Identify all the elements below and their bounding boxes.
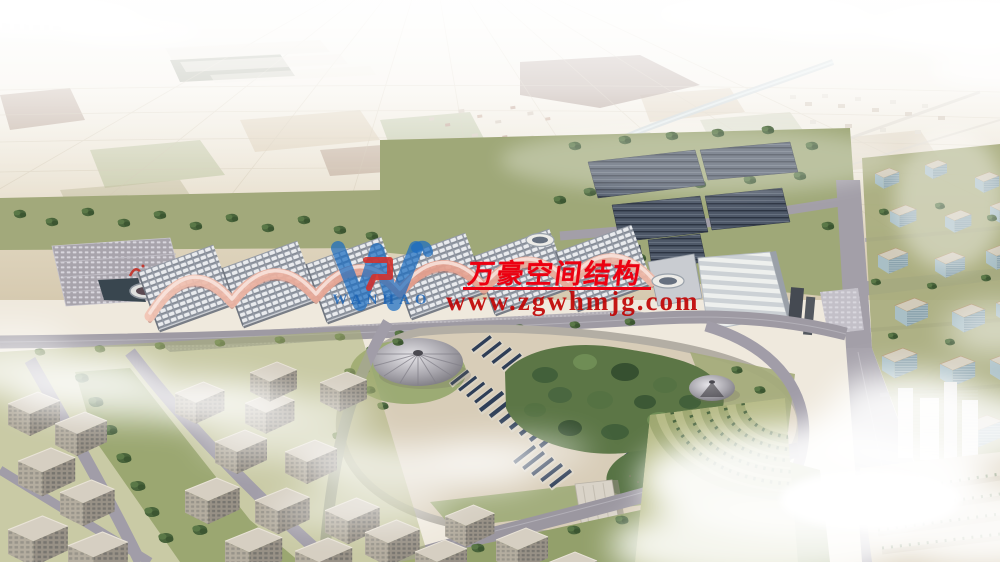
round-pavilion — [526, 234, 554, 247]
oval-pavilion-east — [652, 274, 684, 288]
scene-svg — [0, 0, 1000, 562]
aerial-rendering: WANHAO 万豪空间结构 www.zgwhmjg.com — [0, 0, 1000, 562]
